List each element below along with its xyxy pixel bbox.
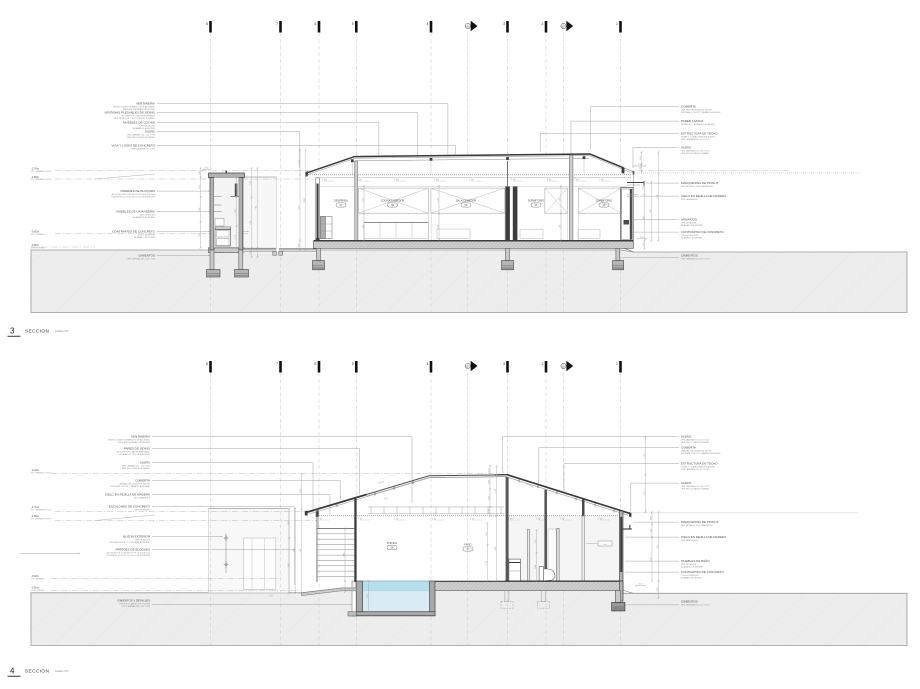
svg-text:ESTRUCTURA DE TECHO: ESTRUCTURA DE TECHO xyxy=(681,462,718,466)
svg-text:VER LAMINAS 011 Y 012: VER LAMINAS 011 Y 012 xyxy=(131,147,156,150)
svg-text:5: 5 xyxy=(352,22,354,26)
svg-text:7.95: 7.95 xyxy=(256,206,258,210)
svg-text:NPT TERMINADO TECHO: NPT TERMINADO TECHO xyxy=(31,471,52,474)
svg-text:1: 1 xyxy=(616,22,618,26)
svg-text:PARED DE SIDING: PARED DE SIDING xyxy=(124,447,151,451)
svg-text:2: 2 xyxy=(542,22,544,26)
svg-text:0.70: 0.70 xyxy=(488,480,490,484)
svg-text:PAREDES DE BLOQUES: PAREDES DE BLOQUES xyxy=(121,189,155,193)
svg-text:1.05: 1.05 xyxy=(486,532,488,536)
svg-text:ALERO: ALERO xyxy=(681,435,692,439)
svg-text:0.90: 0.90 xyxy=(535,565,537,569)
svg-text:escala 1:50: escala 1:50 xyxy=(55,669,69,673)
svg-text:2.60: 2.60 xyxy=(362,225,364,229)
svg-text:VENTANERIA: VENTANERIA xyxy=(131,435,150,439)
svg-text:3: 3 xyxy=(563,25,564,27)
svg-text:VER LAMINA 009: VER LAMINA 009 xyxy=(133,496,150,499)
svg-text:CUBIERTA: CUBIERTA xyxy=(135,479,150,483)
svg-text:NIVEL TERRENO: NIVEL TERRENO xyxy=(31,247,45,249)
svg-text:2.95: 2.95 xyxy=(250,181,252,185)
svg-text:CUBIERTA: CUBIERTA xyxy=(681,105,696,109)
svg-text:CON REPELLO LISO DE 75mm DE ES: CON REPELLO LISO DE 75mm DE ESPESOR xyxy=(106,555,150,557)
svg-text:8: 8 xyxy=(206,22,208,26)
svg-text:0.60: 0.60 xyxy=(205,168,209,170)
svg-text:NPT TERMINADO TECHO: NPT TERMINADO TECHO xyxy=(31,509,52,512)
svg-text:3: 3 xyxy=(503,362,505,366)
svg-text:DORMITORIO: DORMITORIO xyxy=(596,200,612,203)
svg-text:5.00: 5.00 xyxy=(250,221,252,225)
svg-text:MUEBLES DE BAÑO: MUEBLES DE BAÑO xyxy=(681,558,710,563)
svg-text:CIELO EN REJILLA DE MADERA: CIELO EN REJILLA DE MADERA xyxy=(105,493,150,497)
svg-text:2.10: 2.10 xyxy=(535,540,537,544)
svg-text:SECCION: SECCION xyxy=(25,329,49,335)
svg-text:SECCION: SECCION xyxy=(25,669,49,675)
svg-text:ACABADOS A DEFINIR: ACABADOS A DEFINIR xyxy=(681,565,704,568)
svg-text:CONTRAPISO DE CONCRETO: CONTRAPISO DE CONCRETO xyxy=(681,570,724,574)
svg-text:MUEBLES DE LAVANDERIA: MUEBLES DE LAVANDERIA xyxy=(116,210,155,214)
svg-text:ACABADOS A DEFINIR: ACABADOS A DEFINIR xyxy=(133,216,156,219)
svg-text:0.75: 0.75 xyxy=(643,243,645,247)
svg-text:8.85: 8.85 xyxy=(657,195,659,199)
svg-text:BUZON EXTERIOR: BUZON EXTERIOR xyxy=(123,535,151,539)
svg-text:2.15: 2.15 xyxy=(235,235,237,239)
svg-text:7: 7 xyxy=(276,362,278,366)
svg-text:VER LAMINAS 011, 012 Y 013: VER LAMINAS 011, 012 Y 013 xyxy=(681,603,710,606)
svg-text:PISCINA: PISCINA xyxy=(387,542,397,545)
svg-text:ESTRUCTURA DE TECHO: ESTRUCTURA DE TECHO xyxy=(681,132,718,136)
svg-text:0.15: 0.15 xyxy=(639,584,643,586)
svg-text:2.10: 2.10 xyxy=(486,561,488,565)
svg-text:CUBIERTA: CUBIERTA xyxy=(681,446,696,450)
svg-text:0.95: 0.95 xyxy=(488,496,490,500)
svg-text:2.10: 2.10 xyxy=(495,489,497,493)
svg-text:VER LAMINAS 011, 012 Y 013: VER LAMINAS 011, 012 Y 013 xyxy=(681,468,710,471)
svg-text:2.60: 2.60 xyxy=(437,225,439,229)
svg-text:DETALLES Y ACABADO A DEFINIR: DETALLES Y ACABADO A DEFINIR xyxy=(681,123,715,126)
svg-text:CONTRAPISO DE CONCRETO: CONTRAPISO DE CONCRETO xyxy=(112,230,155,234)
svg-text:ALERO: ALERO xyxy=(140,461,151,465)
svg-text:4: 4 xyxy=(427,22,429,26)
svg-text:2.75: 2.75 xyxy=(362,198,364,202)
svg-text:VER LAMINAS 011, 012 Y 013: VER LAMINAS 011, 012 Y 013 xyxy=(681,257,710,260)
svg-text:ACABADO A DEFINIR: ACABADO A DEFINIR xyxy=(681,576,702,579)
svg-text:VER SECCIONES DE PARED: VER SECCIONES DE PARED xyxy=(122,467,151,470)
svg-text:1: 1 xyxy=(616,362,618,366)
svg-text:VER SECCIONES DE PARED: VER SECCIONES DE PARED xyxy=(681,152,710,155)
svg-text:ACABADO A DEFINIR: ACABADO A DEFINIR xyxy=(681,236,702,239)
svg-text:2.75: 2.75 xyxy=(559,198,561,202)
svg-text:VER DETALLES: VER DETALLES xyxy=(135,508,151,511)
svg-text:3: 3 xyxy=(467,25,468,27)
svg-text:ALERO: ALERO xyxy=(145,130,156,134)
svg-text:VENTANERIA: VENTANERIA xyxy=(136,102,155,106)
svg-text:-2.85m: -2.85m xyxy=(31,175,39,179)
svg-text:ESCALONES DE CONCRETO: ESCALONES DE CONCRETO xyxy=(109,505,151,509)
svg-text:0.60: 0.60 xyxy=(650,516,652,520)
svg-text:-0.50m: -0.50m xyxy=(31,243,39,247)
svg-text:VER LAMINAS 011, 012 Y 013: VER LAMINAS 011, 012 Y 013 xyxy=(127,257,156,260)
svg-text:2.10: 2.10 xyxy=(199,185,201,189)
svg-text:VER DETALLES Y SECCIONES DE PA: VER DETALLES Y SECCIONES DE PARED xyxy=(114,117,156,120)
svg-text:-0.00m: -0.00m xyxy=(31,574,39,578)
svg-text:VER LAMINAS 011, 012 Y 013: VER LAMINAS 011, 012 Y 013 xyxy=(681,138,710,141)
svg-text:3: 3 xyxy=(10,327,15,336)
svg-text:VER SECCIONES DE PARED: VER SECCIONES DE PARED xyxy=(681,487,710,490)
svg-text:escala 1:50: escala 1:50 xyxy=(55,329,69,333)
svg-text:PATIO: PATIO xyxy=(464,544,471,547)
svg-text:1.30: 1.30 xyxy=(367,595,369,599)
svg-text:CIMIENTOS Y DETALLES: CIMIENTOS Y DETALLES xyxy=(117,599,150,603)
svg-text:6: 6 xyxy=(315,362,317,366)
svg-text:-0.50m: -0.50m xyxy=(31,586,39,590)
svg-text:9.05: 9.05 xyxy=(304,198,306,202)
svg-text:SISTEMA Y ACABADO A DEFINIR: SISTEMA Y ACABADO A DEFINIR xyxy=(118,441,151,444)
svg-text:2.75: 2.75 xyxy=(437,198,439,202)
svg-text:8: 8 xyxy=(206,362,208,366)
svg-text:VER DETALLE. VER LAMINA 009: VER DETALLE. VER LAMINA 009 xyxy=(681,185,713,188)
svg-text:DESPENSA: DESPENSA xyxy=(334,200,348,203)
svg-text:2.05: 2.05 xyxy=(650,557,652,561)
svg-text:ALERO: ALERO xyxy=(681,481,692,485)
svg-text:2.90: 2.90 xyxy=(235,210,237,214)
svg-text:0.65: 0.65 xyxy=(650,529,652,533)
svg-text:1.95: 1.95 xyxy=(235,185,237,189)
svg-text:3: 3 xyxy=(503,22,505,26)
svg-text:0.80: 0.80 xyxy=(657,588,659,592)
svg-text:DORMITORIO: DORMITORIO xyxy=(528,200,544,203)
svg-text:4.55: 4.55 xyxy=(643,216,645,220)
svg-text:2.10: 2.10 xyxy=(644,491,646,495)
svg-text:VER SECCIONES DE PARED: VER SECCIONES DE PARED xyxy=(127,136,156,139)
svg-text:MARQUESINA DE PINOLIT: MARQUESINA DE PINOLIT xyxy=(681,181,719,185)
svg-text:SISTEMA, COLOR Y TAMAÑO A DEFI: SISTEMA, COLOR Y TAMAÑO A DEFINIR xyxy=(111,485,151,488)
svg-text:COCINA-COMEDOR: COCINA-COMEDOR xyxy=(381,200,405,203)
svg-text:5.90: 5.90 xyxy=(650,209,652,213)
svg-text:VER LAMINAS 011, 012 Y 013: VER LAMINAS 011, 012 Y 013 xyxy=(122,605,151,608)
svg-text:3: 3 xyxy=(563,365,564,367)
svg-text:1.50: 1.50 xyxy=(288,521,290,525)
svg-text:0.30: 0.30 xyxy=(488,469,490,473)
svg-text:1.25: 1.25 xyxy=(643,186,645,190)
svg-text:-0.60m: -0.60m xyxy=(31,230,39,234)
svg-text:MUEBLES DE COCINA: MUEBLES DE COCINA xyxy=(123,121,155,125)
svg-text:NPT TERMINADO TECHO: NPT TERMINADO TECHO xyxy=(31,178,52,181)
svg-text:VER LAMINA 009: VER LAMINA 009 xyxy=(681,539,698,542)
svg-text:VER LAMINA 009: VER LAMINA 009 xyxy=(681,198,698,201)
svg-text:ALERO: ALERO xyxy=(681,146,692,150)
svg-text:2.45: 2.45 xyxy=(199,208,201,212)
svg-text:CIMIENTOS: CIMIENTOS xyxy=(681,254,698,258)
svg-text:2.45: 2.45 xyxy=(288,564,290,568)
svg-text:3: 3 xyxy=(467,365,468,367)
svg-text:NIVEL TERRENO: NIVEL TERRENO xyxy=(31,590,45,592)
svg-text:-2.85m: -2.85m xyxy=(31,514,39,518)
svg-text:-2.76m: -2.76m xyxy=(31,505,39,509)
svg-text:2.55: 2.55 xyxy=(199,233,201,237)
svg-text:CIELO EN REJILLA DE MADERA: CIELO EN REJILLA DE MADERA xyxy=(681,194,726,198)
svg-text:ARMARIOS: ARMARIOS xyxy=(681,218,697,222)
svg-text:CIELO EN REJILLA DE MADERA: CIELO EN REJILLA DE MADERA xyxy=(681,535,726,539)
svg-text:ALTURA, MODELO Y SISTEMA A DEF: ALTURA, MODELO Y SISTEMA A DEFINIR xyxy=(110,541,151,544)
svg-text:VENTANAS PLEGABLES DE SIDING: VENTANAS PLEGABLES DE SIDING xyxy=(104,111,155,115)
svg-text:SISTEMA, COLOR Y TAMAÑO A DEFI: SISTEMA, COLOR Y TAMAÑO A DEFINIR xyxy=(681,452,721,455)
svg-text:2.10: 2.10 xyxy=(644,454,646,458)
svg-text:-2.76m: -2.76m xyxy=(31,167,39,171)
svg-text:2.60: 2.60 xyxy=(559,225,561,229)
svg-text:3.15: 3.15 xyxy=(657,545,659,549)
svg-text:0.70: 0.70 xyxy=(640,166,642,170)
svg-text:SALA-COMEDOR: SALA-COMEDOR xyxy=(456,200,476,203)
svg-text:VER SECCIONES DE PARED: VER SECCIONES DE PARED xyxy=(681,441,710,444)
svg-text:3.95: 3.95 xyxy=(294,549,296,553)
svg-text:NPT TERMINADO TECHO: NPT TERMINADO TECHO xyxy=(31,518,52,521)
svg-text:0.90: 0.90 xyxy=(640,237,644,239)
svg-text:-4.26m: -4.26m xyxy=(31,468,39,472)
svg-text:VER DETALLE. VER LAMINA 009: VER DETALLE. VER LAMINA 009 xyxy=(681,524,713,527)
svg-text:ACABADOS A DEFINIR: ACABADOS A DEFINIR xyxy=(681,224,704,227)
svg-text:6: 6 xyxy=(315,22,317,26)
svg-text:PARED LIVIANA: PARED LIVIANA xyxy=(681,119,703,123)
svg-text:2.82: 2.82 xyxy=(495,547,497,551)
svg-text:CIMIENTOS: CIMIENTOS xyxy=(681,600,698,604)
svg-text:NPT TERMINADO: NPT TERMINADO xyxy=(31,233,46,236)
svg-text:CIMIENTOS: CIMIENTOS xyxy=(138,254,155,258)
svg-text:0.30: 0.30 xyxy=(638,164,642,166)
svg-text:NPT TERMINADO TECHO: NPT TERMINADO TECHO xyxy=(31,170,52,173)
svg-text:5: 5 xyxy=(352,362,354,366)
svg-text:3.95: 3.95 xyxy=(300,549,302,553)
svg-text:7: 7 xyxy=(276,22,278,26)
svg-text:4: 4 xyxy=(427,362,429,366)
svg-text:2.50: 2.50 xyxy=(298,161,300,165)
svg-text:4: 4 xyxy=(10,667,15,676)
svg-text:0.95: 0.95 xyxy=(298,243,300,247)
svg-text:0.30: 0.30 xyxy=(488,510,490,514)
svg-text:1.25: 1.25 xyxy=(640,156,642,160)
svg-text:ACABADO A DEFINIR: ACABADO A DEFINIR xyxy=(134,236,155,239)
svg-text:PAREDES DE BLOQUES: PAREDES DE BLOQUES xyxy=(116,548,150,552)
svg-text:1.60: 1.60 xyxy=(300,489,302,493)
svg-text:ACABADO Y COLOR A DEFINIR: ACABADO Y COLOR A DEFINIR xyxy=(119,453,150,456)
svg-text:0.90: 0.90 xyxy=(250,251,252,255)
svg-text:CON REPELLO LISO DE 75mm DE ES: CON REPELLO LISO DE 75mm DE ESPESOR xyxy=(111,196,155,198)
svg-text:2.45: 2.45 xyxy=(343,553,345,557)
svg-text:0.15: 0.15 xyxy=(199,171,201,175)
svg-text:CONTRAPISO DE CONCRETO: CONTRAPISO DE CONCRETO xyxy=(681,230,724,234)
svg-text:SISTEMA, COLOR Y TAMAÑO A DEFI: SISTEMA, COLOR Y TAMAÑO A DEFINIR xyxy=(681,111,721,114)
svg-text:MARQUESINA DE PINOLIT: MARQUESINA DE PINOLIT xyxy=(681,520,719,524)
svg-text:2: 2 xyxy=(542,362,544,366)
svg-text:NPT TERMINADO: NPT TERMINADO xyxy=(31,578,46,581)
svg-text:6.55: 6.55 xyxy=(298,206,300,210)
svg-text:VIGA Y LOSAS DE CONCRETO: VIGA Y LOSAS DE CONCRETO xyxy=(111,144,155,148)
